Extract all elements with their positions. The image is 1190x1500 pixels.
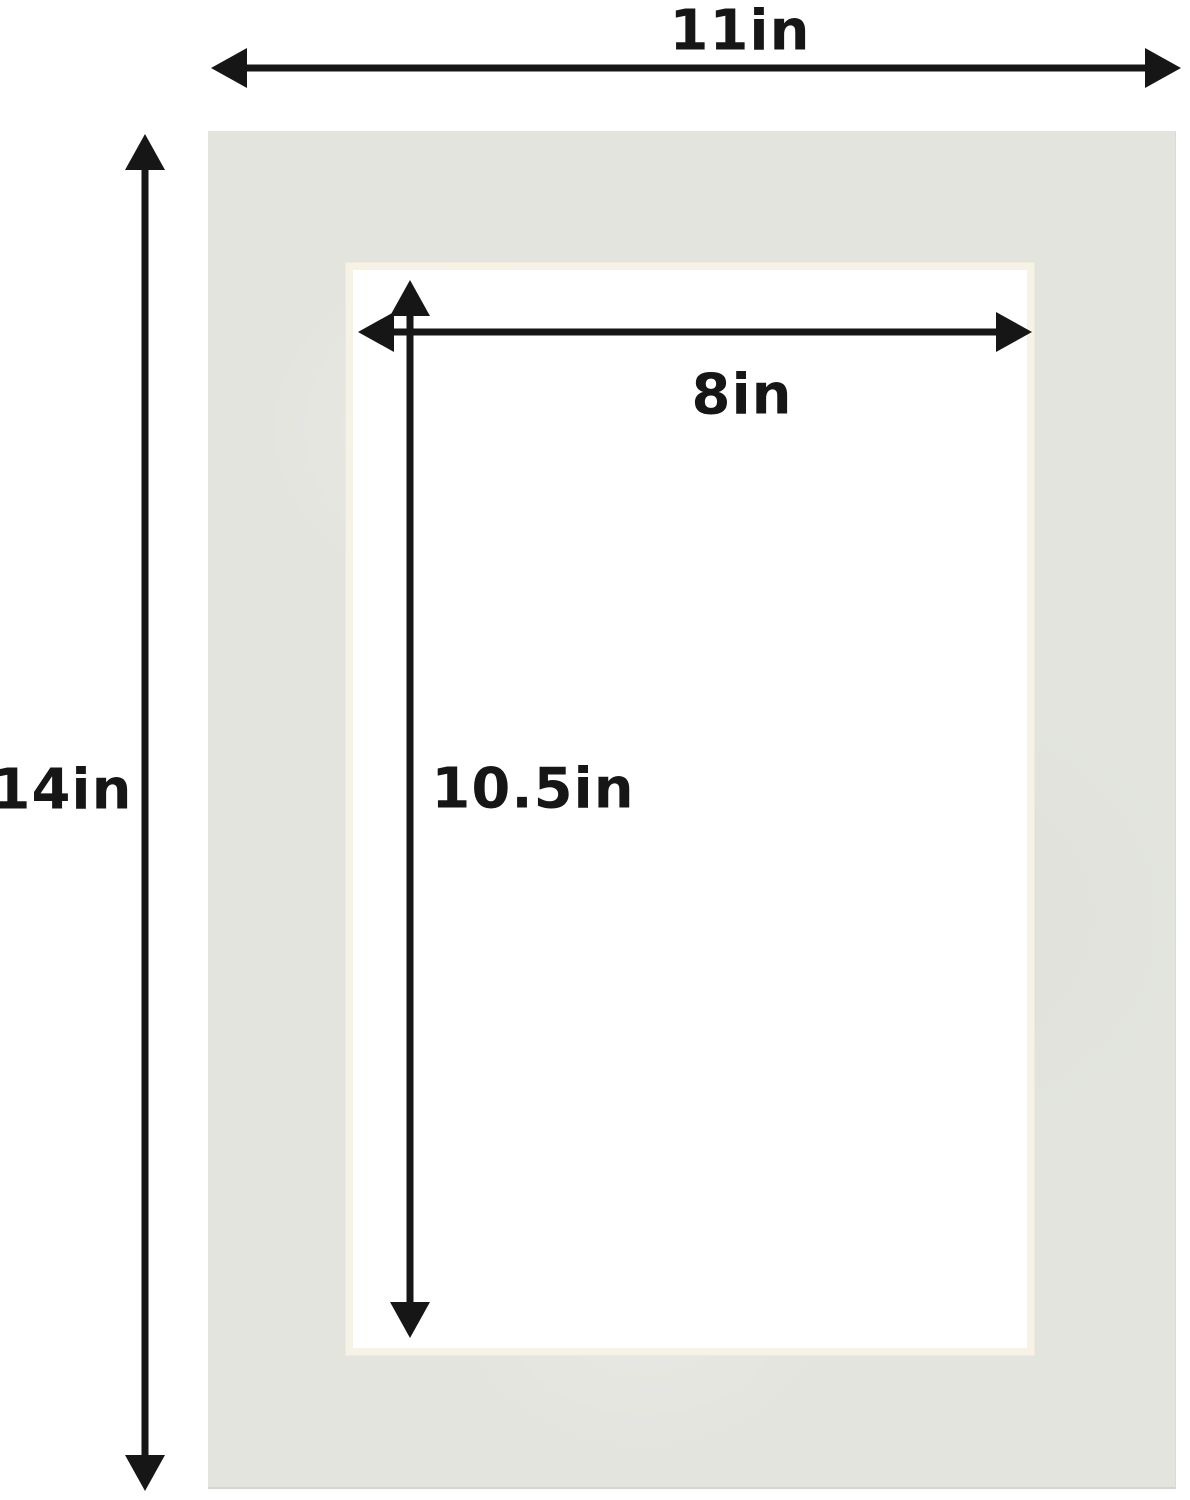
arrowhead-down-icon [125,1455,165,1491]
arrowhead-left-icon [211,48,247,88]
arrowhead-right-icon [1145,48,1181,88]
mat-dimension-diagram: 11in 14in 8in 10.5in [0,0,1190,1500]
arrowhead-up-icon [125,134,165,170]
opening-height-label: 10.5in [431,757,634,822]
opening-width-label: 8in [691,363,792,428]
outer-width-label: 11in [670,0,811,64]
outer-height-label: 14in [0,758,133,823]
